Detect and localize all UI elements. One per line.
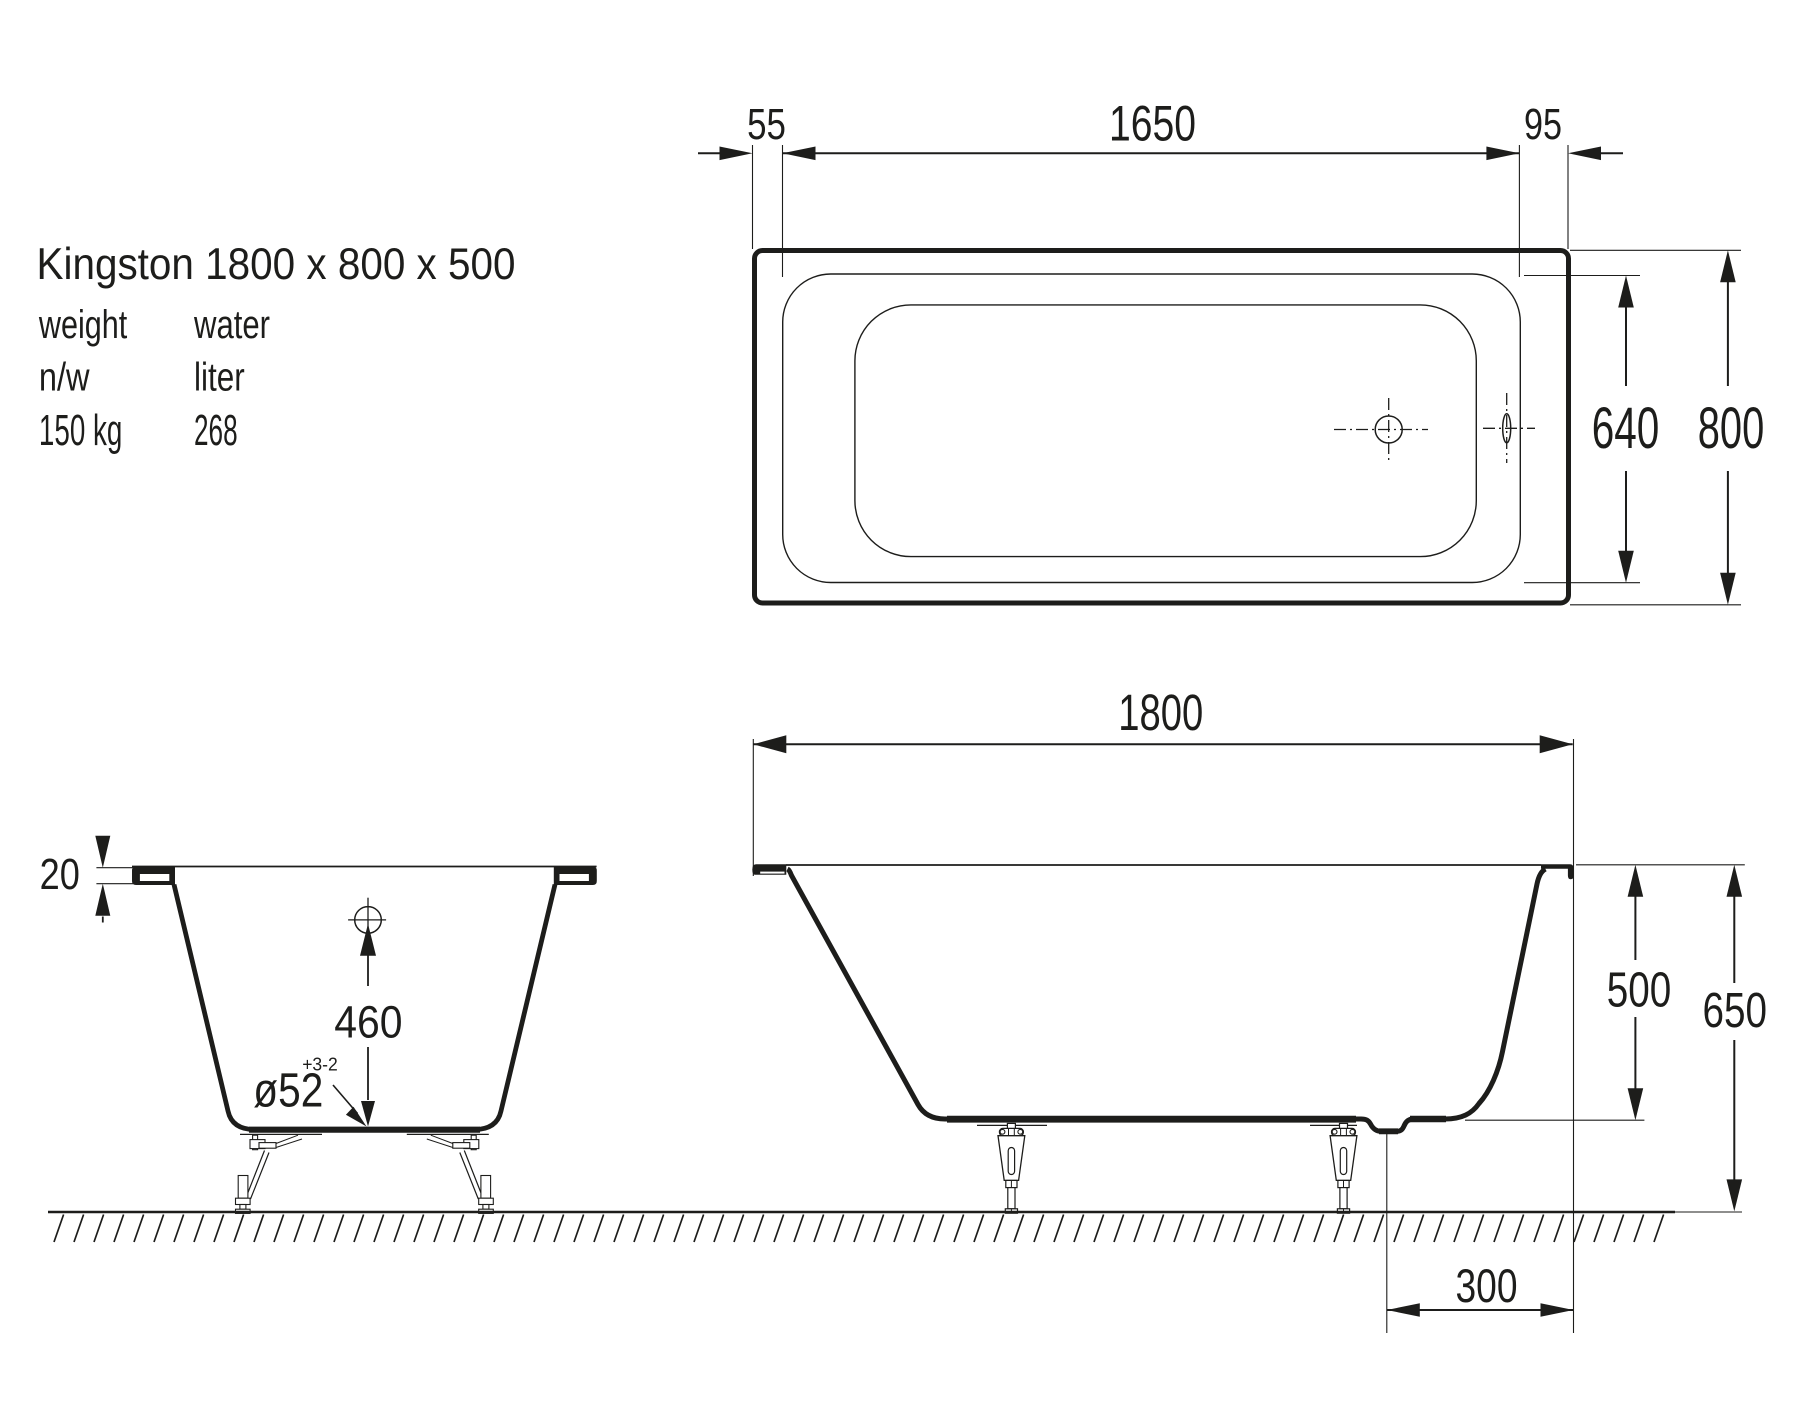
svg-text:460: 460 <box>334 997 402 1048</box>
svg-text:640: 640 <box>1592 396 1660 461</box>
svg-text:500: 500 <box>1607 963 1672 1018</box>
svg-text:300: 300 <box>1456 1259 1518 1312</box>
svg-text:55: 55 <box>747 100 786 149</box>
svg-text:650: 650 <box>1703 983 1768 1038</box>
svg-text:1650: 1650 <box>1109 96 1196 152</box>
svg-text:Kingston 1800 x 800 x 500: Kingston 1800 x 800 x 500 <box>37 239 516 289</box>
svg-text:95: 95 <box>1524 100 1562 149</box>
svg-text:water: water <box>193 303 270 347</box>
svg-text:n/w: n/w <box>39 356 90 400</box>
svg-text:+3-2: +3-2 <box>302 1055 338 1075</box>
svg-text:800: 800 <box>1698 396 1765 461</box>
svg-text:1800: 1800 <box>1118 684 1203 741</box>
svg-text:150 kg: 150 kg <box>39 406 123 455</box>
svg-text:weight: weight <box>38 303 127 347</box>
svg-text:268: 268 <box>194 406 238 455</box>
svg-text:20: 20 <box>40 850 80 899</box>
svg-text:liter: liter <box>194 356 245 400</box>
